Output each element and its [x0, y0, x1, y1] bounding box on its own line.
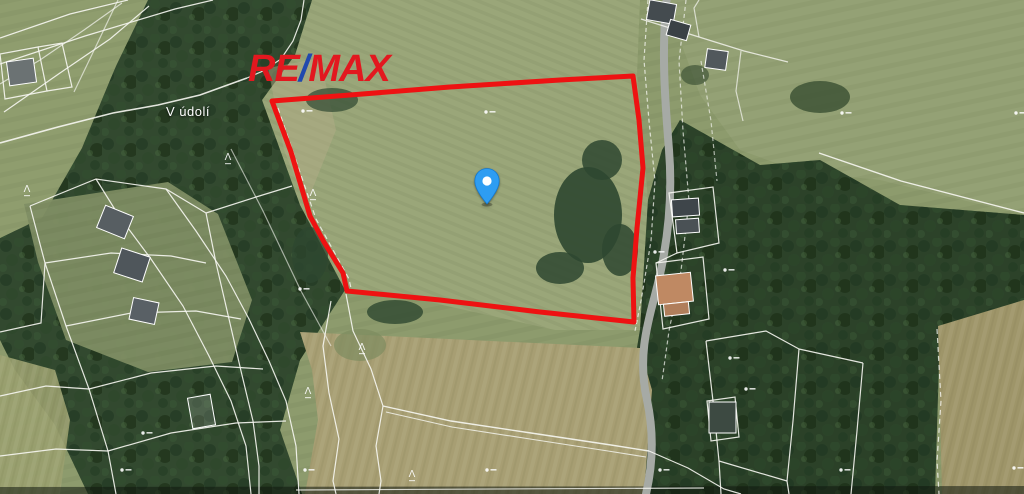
conifer-symbol-icon: Λ — [409, 469, 416, 480]
building-footprint — [187, 394, 215, 429]
parcel-marker — [723, 268, 726, 271]
conifer-symbol-icon: Λ — [24, 184, 31, 195]
parcel-marker-label — [734, 357, 740, 359]
tree-label-mark — [305, 397, 311, 398]
parcel-marker — [1014, 111, 1017, 114]
conifer-symbol-icon: Λ — [359, 342, 366, 353]
parcel-marker-label — [307, 110, 313, 112]
parcel-marker-label — [845, 469, 851, 471]
building-footprint — [6, 58, 36, 86]
building-footprint — [676, 218, 700, 234]
building-footprint — [709, 402, 736, 433]
parcel-marker-label — [659, 251, 665, 253]
parcel-marker-label — [729, 269, 735, 271]
pin-dot — [482, 176, 491, 185]
parcel-marker-label — [491, 469, 497, 471]
conifer-symbol-icon: Λ — [305, 386, 312, 397]
tree-cluster — [367, 300, 423, 324]
parcel-marker — [301, 109, 304, 112]
parcel-marker — [744, 387, 747, 390]
parcel-marker-label — [304, 288, 310, 290]
parcel-marker-label — [147, 432, 153, 434]
building-footprint — [705, 49, 728, 71]
parcel-marker — [485, 468, 488, 471]
building-footprint — [129, 298, 159, 325]
building-footprint — [656, 272, 694, 304]
tree-label-mark — [310, 199, 316, 200]
parcel-marker-label — [750, 388, 756, 390]
parcel-marker-label — [1018, 467, 1024, 469]
terrain-layer — [0, 0, 1024, 494]
parcel-marker — [141, 431, 144, 434]
parcel-marker — [653, 250, 656, 253]
conifer-symbol-icon: Λ — [310, 188, 317, 199]
parcel-marker — [728, 356, 731, 359]
parcel-marker-label — [1020, 112, 1024, 114]
tree-label-mark — [24, 195, 30, 196]
tree-cluster — [536, 252, 584, 284]
parcel-marker — [839, 468, 842, 471]
parcel-marker-label — [664, 469, 670, 471]
parcel-marker — [1012, 466, 1015, 469]
tree-label-mark — [359, 353, 365, 354]
parcel-marker-label — [309, 469, 315, 471]
parcel-marker-label — [490, 111, 496, 113]
parcel-marker-label — [126, 469, 132, 471]
conifer-symbol-icon: Λ — [225, 152, 232, 163]
tree-cluster — [582, 140, 622, 180]
parcel-marker — [120, 468, 123, 471]
parcel-marker — [658, 468, 661, 471]
parcel-marker — [840, 111, 843, 114]
map-canvas[interactable]: ΛΛΛΛΛΛ RE/MAX V údolí — [0, 0, 1024, 494]
parcel-marker-label — [846, 112, 852, 114]
building-footprint — [671, 198, 699, 217]
building-footprint — [663, 302, 689, 317]
forest-south-east-texture — [628, 330, 940, 494]
parcel-marker — [298, 287, 301, 290]
parcel-marker — [484, 110, 487, 113]
parcel-marker — [303, 468, 306, 471]
tree-label-mark — [409, 480, 415, 481]
field-far-east-texture — [938, 300, 1024, 494]
aerial-map: ΛΛΛΛΛΛ — [0, 0, 1024, 494]
tree-cluster — [790, 81, 850, 113]
tree-label-mark — [225, 163, 231, 164]
bottom-shade — [0, 486, 1024, 494]
